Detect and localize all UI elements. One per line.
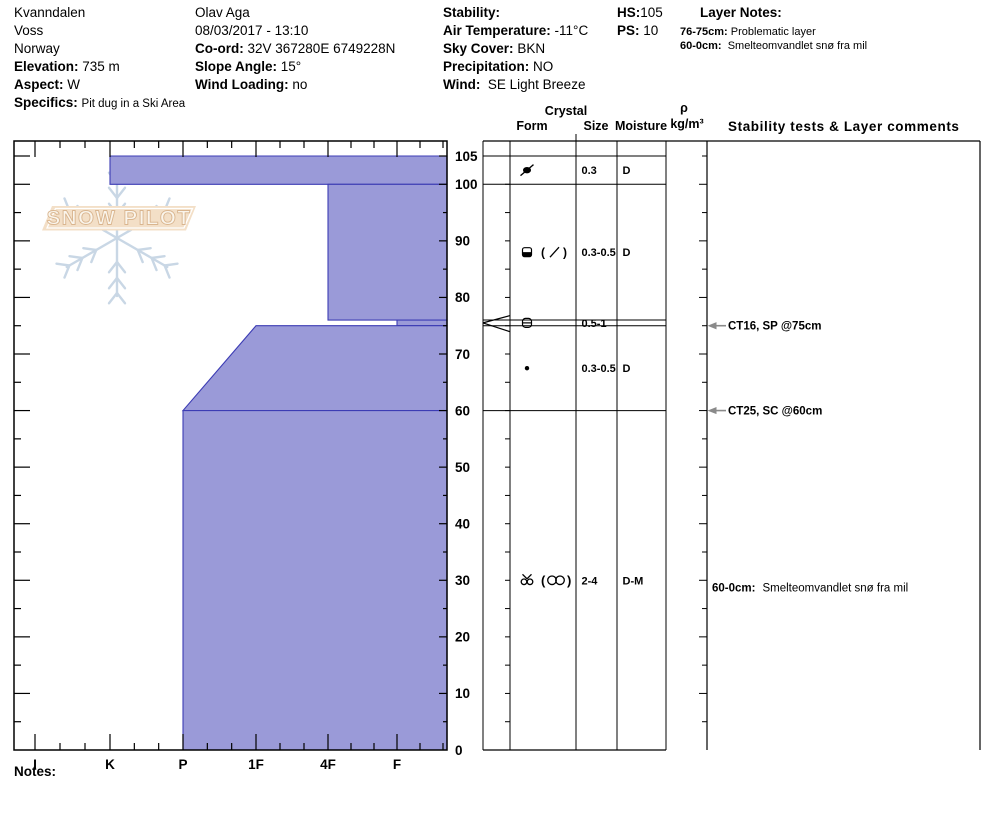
layer-polygon-100-76cm [328,184,447,320]
y-axis-label-80: 80 [455,290,470,305]
secondary-paren: ( [541,573,546,588]
grain-size-value: 2-4 [582,575,599,587]
grain-square-fill [523,252,532,256]
y-axis-label-100: 100 [455,177,478,192]
secondary-paren: ) [563,246,567,260]
moisture-value: D [623,247,631,259]
snowflake-branch-line [69,256,82,258]
hardness-layers [110,156,447,750]
layer-row-75-60cm: 0.3-0.5D [525,363,631,375]
cluster-circle [527,579,533,585]
snowflake-branch-line [165,264,178,266]
grain-size-value: 0.3-0.5 [582,363,616,375]
snowflake-branch-line [109,262,117,272]
y-axis-label-10: 10 [455,686,470,701]
stability-test-label: CT16, SP @75cm [728,321,821,333]
layer-row-76-75cm: 0.5-1 [483,316,607,332]
layer-of-concern-pennant-icon [483,323,510,332]
layer-comment-range: 60-0cm: [712,582,755,594]
x-axis-label-I: I [33,757,37,772]
secondary-paren: ( [541,246,545,260]
snowpilot-profile-report: Kvanndalen Voss Norway Elevation: 735 m … [0,0,994,840]
grain-size-value: 0.3 [582,165,597,177]
snowflake-branch-line [109,293,117,303]
layer-comment-annotation: 60-0cm:Smelteomvandlet snø fra mil [712,582,908,594]
layer-comment-text: Smelteomvandlet snø fra mil [762,582,908,594]
y-axis-label-60: 60 [455,403,470,418]
stability-test-annotation: CT25, SC @60cm [708,406,823,418]
y-axis-label-30: 30 [455,573,470,588]
snowpilot-watermark: SNOW PILOT [42,173,196,303]
x-axis-label-K: K [105,757,115,772]
secondary-circle-icon [548,576,557,585]
layer-table: 0.3D()0.3-0.5D0.5-10.3-0.5D()2-4D-M [483,134,980,750]
layer-polygon-105-100cm [110,156,447,184]
snowflake-branch-line [117,188,125,198]
snowflake-branch-line [109,188,117,198]
moisture-value: D [623,165,631,177]
snowflake-branch-line [109,278,117,288]
layer-polygon-75-60cm [183,326,447,411]
x-axis-label-P: P [178,757,187,772]
snowflake-branch-line [56,264,69,266]
snowflake-arm-icon [117,238,178,278]
watermark-text: SNOW PILOT [47,207,192,230]
y-axis-label-70: 70 [455,347,470,362]
layer-polygon-60-0cm [183,411,447,750]
y-axis-label-20: 20 [455,630,470,645]
x-axis-label-F: F [393,757,401,772]
layer-row-60-0cm: ()2-4D-M [521,573,643,588]
stability-test-annotation: CT16, SP @75cm [708,321,822,333]
grain-size-value: 0.3-0.5 [582,247,616,259]
moisture-value: D [623,363,631,375]
snowflake-branch-line [117,278,125,288]
cluster-v [523,574,528,579]
secondary-slash-icon [550,247,559,257]
snowflake-branch-line [83,248,96,250]
moisture-value: D-M [623,575,644,587]
x-axis-label-1F: 1F [248,757,264,772]
snowflake-branch-line [138,248,151,250]
snowflake-arm-icon [56,238,117,278]
stability-test-label: CT25, SC @60cm [728,406,822,418]
grain-dot [525,366,529,370]
secondary-paren: ) [567,573,571,588]
x-axis-label-4F: 4F [320,757,336,772]
snowflake-branch-line [117,262,125,272]
snowflake-branch-line [117,293,125,303]
y-axis-label-105: 105 [455,149,478,164]
y-axis-label-90: 90 [455,234,470,249]
layer-of-concern-pennant-icon [483,316,510,323]
secondary-circle-icon [556,576,565,585]
cluster-circle [521,579,527,585]
cluster-v [527,574,532,579]
snowflake-branch-line [152,256,165,258]
profile-graphic: SNOW PILOT0102030405060708090100105IKP1F… [0,0,994,840]
grain-slash [521,165,534,176]
y-axis-label-40: 40 [455,517,470,532]
snowflake-arm-icon [109,238,125,303]
y-axis-label-50: 50 [455,460,470,475]
grain-size-value: 0.5-1 [582,318,607,330]
y-axis-label-0: 0 [455,743,463,758]
layer-polygon-76-75cm [397,320,447,326]
